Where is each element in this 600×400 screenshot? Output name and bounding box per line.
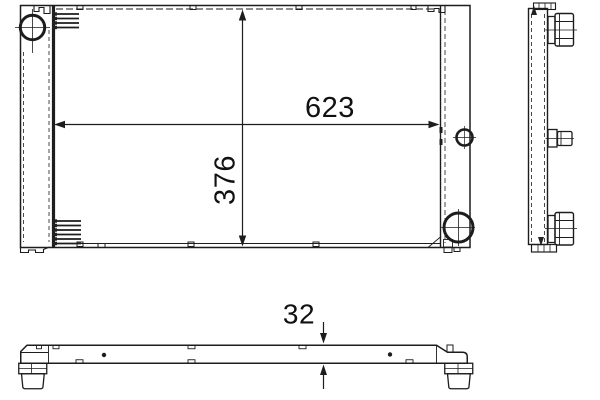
technical-drawing-canvas: 623 376 bbox=[0, 0, 600, 400]
dim-depth-label: 32 bbox=[283, 299, 315, 330]
dim-height-arrow-bottom bbox=[239, 236, 246, 247]
side-bottom-foot bbox=[532, 237, 557, 252]
dim-height-arrow-top bbox=[239, 10, 246, 21]
dim-width-arrow-left bbox=[54, 121, 65, 128]
mount-foot-left bbox=[19, 363, 47, 389]
bottom-bar-dividers bbox=[49, 345, 437, 363]
core-fins-top-left bbox=[52, 12, 79, 29]
front-view-outline bbox=[21, 6, 471, 248]
bottom-view bbox=[19, 345, 473, 389]
dim-depth-arrow-down bbox=[320, 333, 327, 344]
bottom-bar-step-tab bbox=[447, 345, 453, 352]
dim-width-label: 623 bbox=[305, 92, 355, 124]
radiator-drawing: 623 376 bbox=[0, 0, 600, 400]
dim-width: 623 bbox=[54, 92, 440, 128]
side-port-middle bbox=[546, 130, 575, 148]
side-view bbox=[529, 3, 578, 252]
side-port-bottom bbox=[545, 213, 577, 246]
bottom-right-chamfer bbox=[428, 237, 441, 248]
dim-height-label: 376 bbox=[210, 155, 242, 205]
dim-height: 376 bbox=[210, 10, 247, 247]
side-port-top bbox=[545, 14, 577, 47]
bottom-bar-outline bbox=[21, 345, 468, 363]
mount-foot-right bbox=[445, 363, 473, 389]
inlet-port bbox=[453, 126, 476, 149]
side-top-pin bbox=[531, 6, 537, 16]
bottom-bar-holes bbox=[102, 352, 392, 357]
bottom-edge-clips bbox=[77, 242, 319, 248]
core-fins-bottom-left bbox=[52, 219, 81, 245]
inlet-port-crosshair bbox=[453, 126, 476, 149]
dim-width-arrow-right bbox=[429, 121, 440, 128]
side-port-bottom-flange bbox=[548, 216, 555, 243]
dim-depth: 32 bbox=[283, 299, 327, 390]
dim-depth-arrow-up bbox=[320, 365, 327, 376]
front-view bbox=[15, 6, 476, 253]
side-top-cap bbox=[531, 3, 556, 15]
top-left-mount-tabs bbox=[34, 6, 50, 14]
